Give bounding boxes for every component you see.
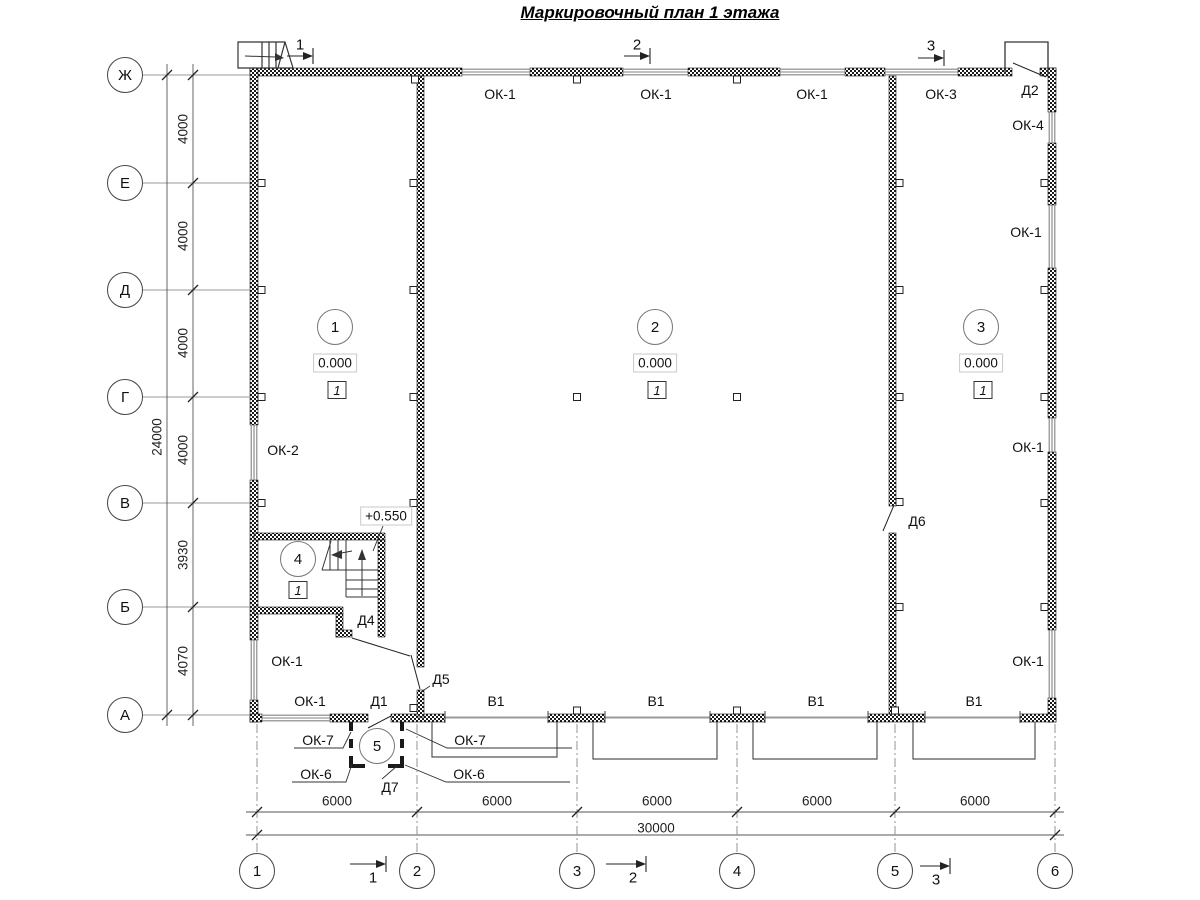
dim-overall-label: 30000 — [637, 821, 675, 836]
mark-label: В1 — [647, 693, 664, 709]
mark-label: В1 — [965, 693, 982, 709]
section-number: 2 — [629, 870, 637, 887]
mark-label: Д6 — [908, 513, 925, 529]
dim-segment-label: 6000 — [960, 794, 990, 809]
row-axis-bubble: Б — [107, 589, 143, 625]
axis-leader-lines — [142, 75, 250, 715]
mark-label: Д5 — [432, 671, 449, 687]
mark-label: ОК-1 — [1012, 653, 1044, 669]
dim-segment-label: 4000 — [176, 221, 191, 251]
section-number: 2 — [633, 37, 641, 54]
mark-label: ОК-1 — [484, 86, 516, 102]
elevation-box: 0.000 — [633, 354, 677, 373]
dim-segment-label: 4000 — [176, 114, 191, 144]
exterior-stair — [238, 42, 293, 68]
room-number-bubble: 4 — [280, 541, 316, 577]
elevation-box: 0.000 — [313, 354, 357, 373]
drawing-title: Маркировочный план 1 этажа — [521, 3, 780, 23]
mark-label: ОК-4 — [1012, 117, 1044, 133]
mark-label: ОК-1 — [1012, 439, 1044, 455]
elevation-box: 0.000 — [959, 354, 1003, 373]
dim-segment-label: 4000 — [176, 328, 191, 358]
mark-label: ОК-1 — [271, 653, 303, 669]
dim-segment-label: 4070 — [176, 646, 191, 676]
stair-elevation-box: +0.550 — [360, 507, 412, 526]
dim-segment-label: 6000 — [322, 794, 352, 809]
mark-label: ОК-1 — [294, 693, 326, 709]
dim-segment-label: 4000 — [176, 435, 191, 465]
mark-label: Д4 — [357, 612, 374, 628]
col-axis-bubble: 1 — [239, 853, 275, 889]
mark-label: В1 — [487, 693, 504, 709]
room-type-box: 1 — [289, 581, 308, 599]
room-number-bubble: 3 — [963, 309, 999, 345]
mark-label: ОК-1 — [1010, 224, 1042, 240]
section-number: 1 — [296, 37, 304, 54]
door-leaves — [352, 63, 1046, 728]
mark-label: ОК-6 — [453, 766, 485, 782]
dim-segment-label: 6000 — [802, 794, 832, 809]
dim-segment-label: 6000 — [482, 794, 512, 809]
room-number-bubble: 2 — [637, 309, 673, 345]
mark-label: В1 — [807, 693, 824, 709]
room-type-box: 1 — [328, 381, 347, 399]
mark-label: Д1 — [370, 693, 387, 709]
room-type-box: 1 — [974, 381, 993, 399]
loading-ramps — [432, 722, 1035, 759]
mark-label: ОК-1 — [640, 86, 672, 102]
dim-segment-label: 3930 — [176, 540, 191, 570]
col-axis-bubble: 3 — [559, 853, 595, 889]
mark-label: ОК-1 — [796, 86, 828, 102]
row-axis-bubble: А — [107, 697, 143, 733]
dimension-lines — [167, 64, 1064, 835]
section-number: 3 — [932, 872, 940, 889]
row-axis-bubble: Г — [107, 379, 143, 415]
col-axis-bubble: 5 — [877, 853, 913, 889]
mark-label: ОК-7 — [454, 732, 486, 748]
room-type-box: 1 — [648, 381, 667, 399]
room-number-bubble: 1 — [317, 309, 353, 345]
mark-label: Д2 — [1021, 82, 1038, 98]
row-axis-bubble: Е — [107, 165, 143, 201]
col-axis-bubble: 6 — [1037, 853, 1073, 889]
mark-label: ОК-2 — [267, 442, 299, 458]
mark-label: Д7 — [381, 779, 398, 795]
floor-plan-canvas: Маркировочный план 1 этажа ЖЕДГВБА123456… — [0, 0, 1200, 900]
section-number: 1 — [369, 870, 377, 887]
row-axis-bubble: Д — [107, 272, 143, 308]
mark-label: ОК-3 — [925, 86, 957, 102]
col-axis-bubble: 2 — [399, 853, 435, 889]
stair-direction-arrows — [331, 549, 366, 560]
dim-segment-label: 6000 — [642, 794, 672, 809]
mark-label: ОК-6 — [300, 766, 332, 782]
room-number-bubble: 5 — [359, 728, 395, 764]
col-axis-bubble: 4 — [719, 853, 755, 889]
section-number: 3 — [927, 38, 935, 55]
row-axis-bubble: Ж — [107, 57, 143, 93]
stair-flight — [322, 540, 378, 597]
mark-label: ОК-7 — [302, 732, 334, 748]
row-axis-bubble: В — [107, 485, 143, 521]
dim-overall-label: 24000 — [150, 418, 165, 456]
